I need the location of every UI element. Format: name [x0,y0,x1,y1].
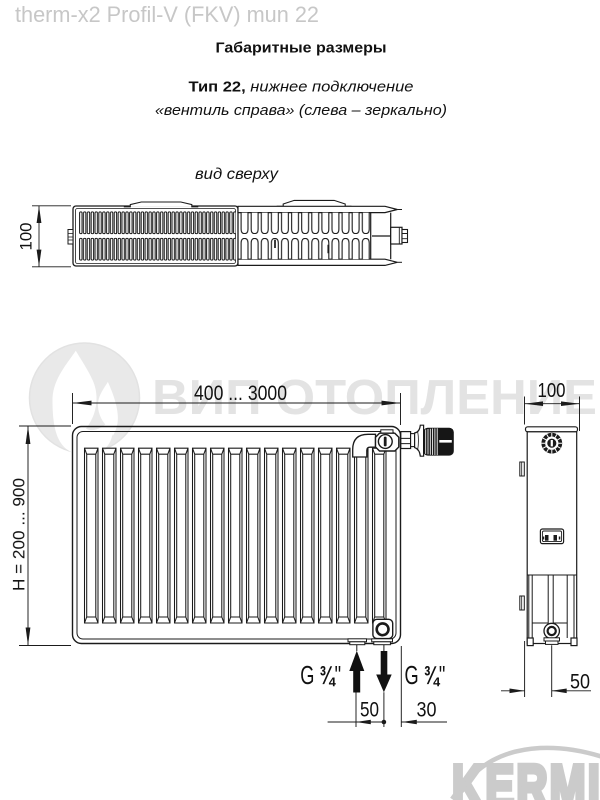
svg-text:Габаритные размеры: Габаритные размеры [216,40,387,57]
svg-text:G ¾": G ¾" [300,661,341,690]
svg-text:50: 50 [570,670,590,693]
svg-text:KERMI: KERMI [452,754,600,800]
svg-text:therm-x2 Profil-V (FKV) mun 22: therm-x2 Profil-V (FKV) mun 22 [15,2,319,27]
svg-text:100: 100 [17,223,36,251]
svg-text:100: 100 [538,380,566,402]
svg-text:30: 30 [417,698,437,721]
svg-text:Тип 22, нижнее подключение: Тип 22, нижнее подключение [189,78,414,95]
svg-text:400 ... 3000: 400 ... 3000 [194,382,287,405]
svg-text:вид сверху: вид сверху [195,166,279,183]
svg-text:50: 50 [360,698,379,721]
svg-text:H = 200 ... 900: H = 200 ... 900 [9,478,28,591]
svg-text:«вентиль справа» (слева – зерк: «вентиль справа» (слева – зеркально) [155,102,447,119]
svg-text:G ¾": G ¾" [405,661,446,690]
